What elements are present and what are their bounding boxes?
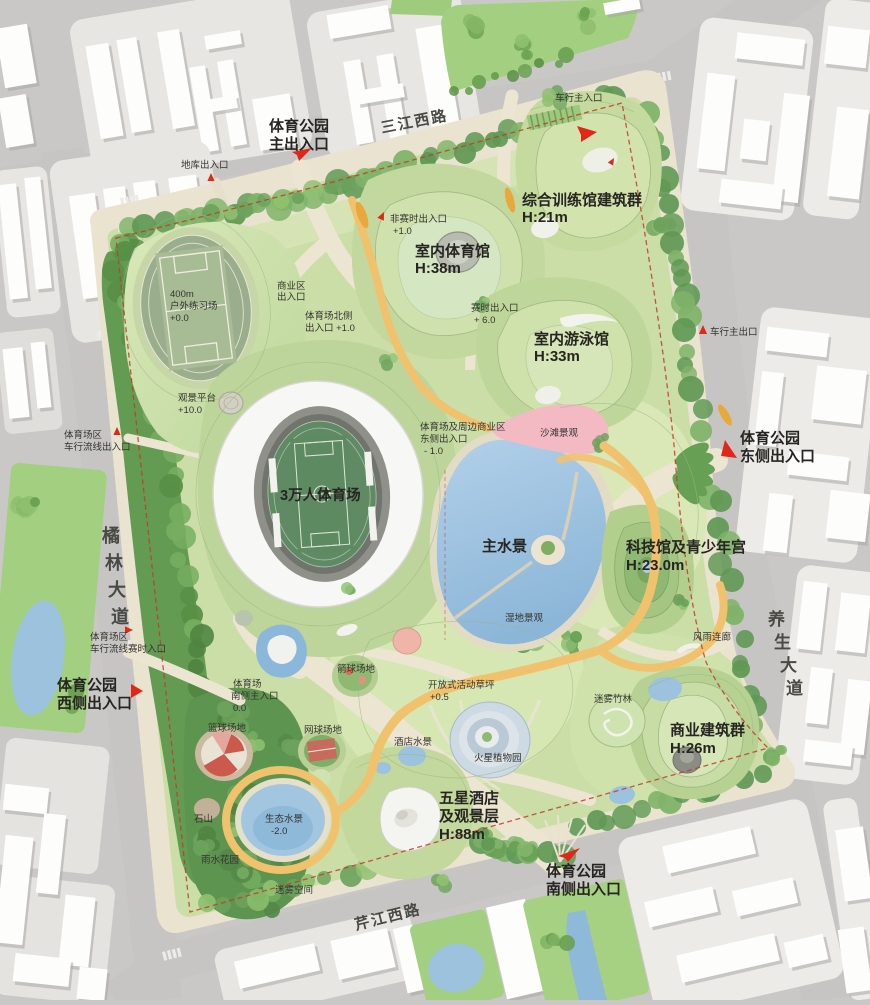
svg-text:迷雾空间: 迷雾空间 [275,884,313,896]
svg-text:车行流线赛时入口: 车行流线赛时入口 [90,643,166,655]
svg-text:+1.0: +1.0 [393,226,412,237]
svg-text:-2.0: -2.0 [271,826,287,837]
svg-text:林: 林 [105,552,123,573]
svg-text:体育公园: 体育公园 [269,117,329,135]
svg-text:+0.5: +0.5 [430,692,449,703]
svg-text:东侧出入口: 东侧出入口 [740,447,815,465]
svg-text:- 1.0: - 1.0 [424,446,443,457]
svg-text:+0.0: +0.0 [170,313,189,324]
svg-text:400m: 400m [170,289,194,300]
svg-text:体育公园: 体育公园 [57,676,117,694]
svg-text:车行主出口: 车行主出口 [710,326,758,338]
svg-text:橘: 橘 [101,526,120,546]
svg-text:迷雾竹林: 迷雾竹林 [594,693,633,705]
svg-text:雨水花园: 雨水花园 [201,854,239,866]
svg-text:网球场地: 网球场地 [304,724,343,736]
svg-text:赛时出入口: 赛时出入口 [471,302,519,314]
svg-text:篮球场地: 篮球场地 [208,722,247,734]
svg-text:风雨连廊: 风雨连廊 [693,631,732,643]
svg-text:非赛时出入口: 非赛时出入口 [390,213,447,225]
svg-text:南侧出入口: 南侧出入口 [546,880,621,898]
svg-text:体育场区: 体育场区 [90,631,129,643]
svg-text:沙滩景观: 沙滩景观 [540,427,579,439]
svg-text:主水景: 主水景 [482,537,527,555]
svg-text:生: 生 [774,632,791,652]
svg-text:H:88m: H:88m [439,826,485,843]
svg-text:大: 大 [108,579,126,600]
svg-text:开放式活动草坪: 开放式活动草坪 [428,679,495,691]
svg-text:户外练习场: 户外练习场 [170,300,218,312]
svg-text:H:33m: H:33m [534,348,580,365]
svg-text:H:23.0m: H:23.0m [626,557,684,574]
svg-text:车行流线出入口: 车行流线出入口 [64,441,131,453]
svg-text:道: 道 [786,678,803,698]
svg-text:H:21m: H:21m [522,209,568,226]
svg-text:出入口 +1.0: 出入口 +1.0 [305,322,355,334]
svg-text:火星植物园: 火星植物园 [474,752,522,764]
svg-text:主出入口: 主出入口 [269,135,329,153]
svg-text:及观景层: 及观景层 [439,807,499,825]
svg-text:养: 养 [767,609,786,629]
svg-text:H:38m: H:38m [415,260,461,277]
svg-text:大: 大 [780,655,797,675]
svg-text:室内游泳馆: 室内游泳馆 [534,330,609,348]
svg-text:石山: 石山 [194,814,213,825]
svg-text:室内体育馆: 室内体育馆 [415,242,490,260]
svg-text:商业区: 商业区 [277,280,306,292]
svg-text:出入口: 出入口 [277,291,306,303]
svg-text:综合训练馆建筑群: 综合训练馆建筑群 [522,191,642,209]
svg-text:体育场北侧: 体育场北侧 [305,310,353,322]
svg-text:箭球场地: 箭球场地 [337,663,376,675]
svg-text:+10.0: +10.0 [178,405,202,416]
svg-text:生态水景: 生态水景 [265,813,303,825]
svg-text:道: 道 [111,606,129,627]
svg-text:五星酒店: 五星酒店 [439,789,499,807]
svg-text:南侧主入口: 南侧主入口 [231,690,279,702]
svg-text:体育场及周边商业区: 体育场及周边商业区 [420,421,506,433]
svg-text:体育公园: 体育公园 [740,429,800,447]
svg-text:体育公园: 体育公园 [546,862,606,880]
svg-text:湿地景观: 湿地景观 [505,612,544,624]
svg-text:观景平台: 观景平台 [178,392,216,404]
svg-text:车行主入口: 车行主入口 [555,92,603,104]
svg-text:体育场区: 体育场区 [64,429,103,441]
svg-text:酒店水景: 酒店水景 [394,736,432,748]
svg-text:体育场: 体育场 [233,678,262,690]
svg-text:+ 6.0: + 6.0 [474,315,495,326]
svg-text:地库出入口: 地库出入口 [181,159,229,171]
svg-text:科技馆及青少年宫: 科技馆及青少年宫 [626,538,746,556]
svg-text:东侧出入口: 东侧出入口 [420,433,468,445]
svg-text:0.0: 0.0 [233,703,246,714]
svg-text:商业建筑群: 商业建筑群 [670,721,745,739]
svg-text:西侧出入口: 西侧出入口 [57,694,132,712]
svg-text:H:26m: H:26m [670,740,716,757]
svg-text:3万人体育场: 3万人体育场 [280,486,361,504]
